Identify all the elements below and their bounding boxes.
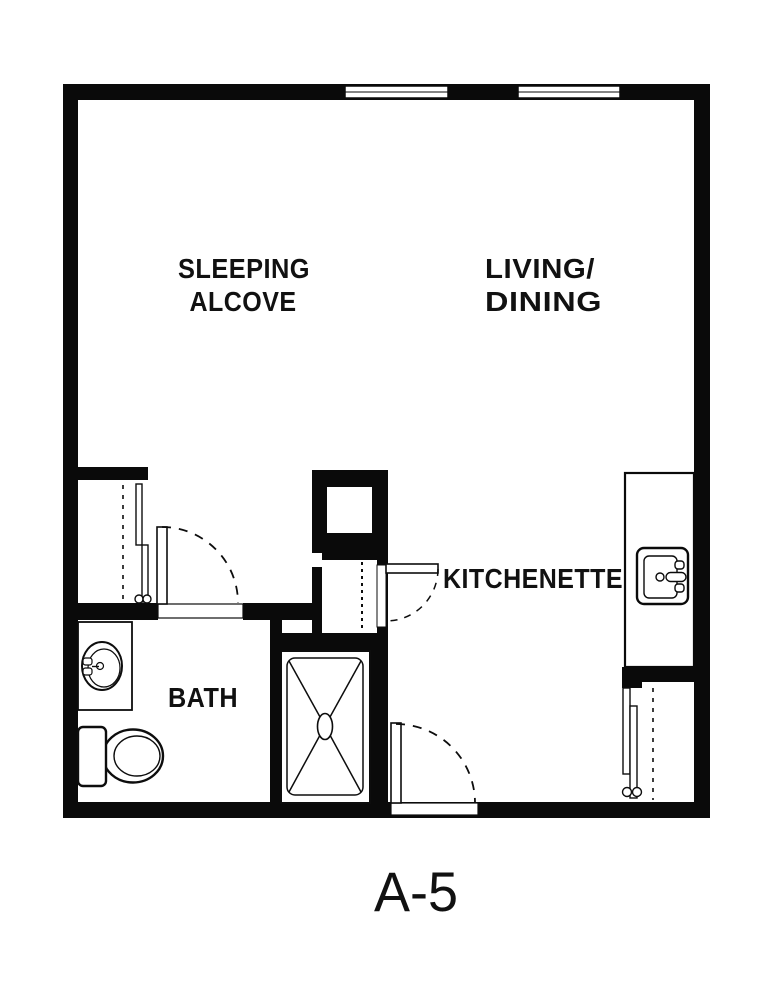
toilet-fixture	[78, 727, 163, 786]
label-sleeping-alcove-line2: ALCOVE	[190, 286, 297, 317]
wall-shower-top	[270, 633, 312, 651]
wall-bath-right	[243, 603, 312, 620]
label-living-dining-line2: DINING	[485, 286, 602, 317]
window-2	[518, 86, 620, 98]
label-sleeping-alcove-line1: SLEEPING	[178, 253, 310, 284]
closet-door-panel	[623, 688, 630, 774]
closet-door-knob	[135, 595, 143, 603]
closet-door-knob	[633, 788, 642, 797]
bath-door-swing-arc	[162, 527, 238, 603]
utility-door-leaf	[386, 564, 438, 573]
entry-door-swing-arc	[396, 724, 475, 803]
window-1	[345, 86, 448, 98]
bath-door	[157, 527, 243, 618]
chase-opening	[327, 487, 372, 533]
utility-closet-door	[377, 564, 438, 627]
label-kitchenette: KITCHENETTE	[443, 563, 623, 594]
walls	[63, 84, 710, 818]
floor-plan-drawing: SLEEPING ALCOVE LIVING/ DINING KITCHENET…	[0, 0, 776, 998]
shower-fixture	[281, 651, 370, 803]
vanity-faucet-handle	[83, 668, 92, 675]
vanity-faucet-handle	[83, 658, 92, 665]
closet-door-panel	[142, 545, 148, 602]
utility-closet-interior	[322, 560, 377, 633]
closet-door-knob	[143, 595, 151, 603]
wall-left	[63, 84, 78, 818]
kitchen-sink-faucet-handle	[675, 561, 684, 569]
kitchenette-counter	[625, 473, 694, 667]
closet-door-knob	[623, 788, 632, 797]
toilet-bowl	[103, 730, 163, 783]
entry-door	[391, 723, 478, 815]
wall-closet-top	[63, 467, 148, 480]
utility-door-threshold	[377, 565, 386, 627]
entry-door-leaf	[391, 723, 401, 803]
kitchen-sink-faucet-handle	[675, 584, 684, 592]
wall-right	[694, 84, 710, 818]
entry-door-threshold	[391, 803, 478, 815]
kitchen-sink-faucet-spout	[666, 573, 686, 582]
wall-bath-left	[63, 603, 158, 620]
kitchen-sink-fixture	[637, 548, 688, 604]
shower-drain	[318, 714, 333, 740]
label-living-dining-line1: LIVING/	[485, 253, 595, 284]
closet-door-panel	[630, 706, 637, 798]
utility-door-swing-arc	[386, 569, 438, 621]
bath-door-leaf	[157, 527, 167, 604]
bathroom-vanity-sink-fixture	[78, 622, 132, 710]
toilet-tank	[78, 727, 106, 786]
closet-door-panel	[136, 484, 142, 545]
column-notch	[312, 553, 322, 567]
sleeping-closet	[123, 484, 151, 603]
label-bath: BATH	[168, 682, 238, 713]
wall-shower-right	[370, 645, 388, 805]
unit-label: A-5	[374, 860, 458, 923]
entry-closet	[623, 688, 654, 800]
kitchen-sink-drain	[656, 573, 664, 581]
floor-plan-page: SLEEPING ALCOVE LIVING/ DINING KITCHENET…	[0, 0, 776, 998]
bath-door-threshold	[158, 604, 243, 618]
wall-closet-corner-block	[622, 667, 642, 688]
